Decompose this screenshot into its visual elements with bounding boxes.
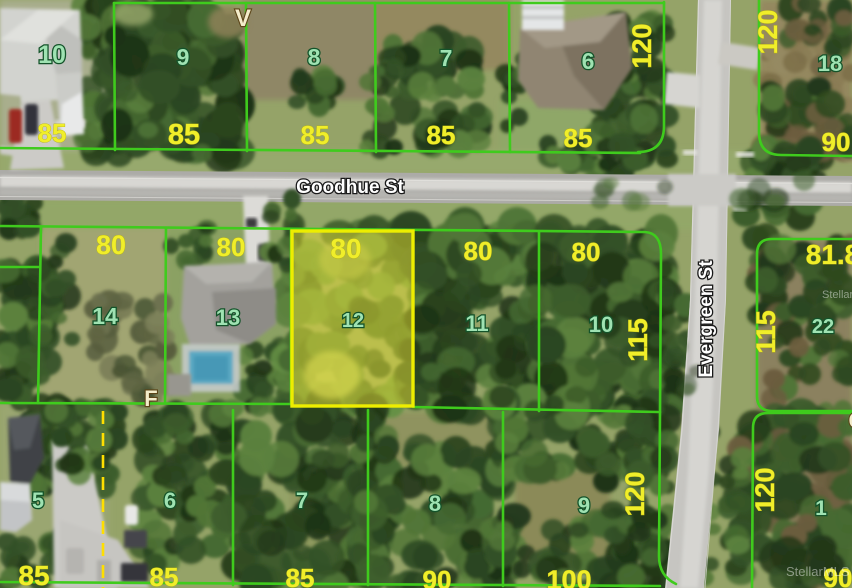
svg-text:V: V (235, 5, 251, 32)
svg-text:80: 80 (330, 233, 361, 264)
svg-text:115: 115 (623, 318, 653, 362)
svg-text:100: 100 (546, 565, 591, 588)
svg-text:Evergreen St: Evergreen St (696, 260, 717, 378)
svg-text:120: 120 (620, 471, 650, 516)
svg-text:9: 9 (578, 493, 590, 518)
svg-text:6: 6 (164, 488, 176, 513)
svg-text:12: 12 (342, 310, 364, 332)
svg-text:F: F (144, 386, 157, 411)
svg-text:Goodhue St: Goodhue St (296, 177, 404, 198)
svg-text:80: 80 (572, 237, 601, 267)
svg-text:85: 85 (38, 118, 67, 148)
svg-text:85: 85 (301, 120, 330, 150)
svg-text:80: 80 (464, 236, 493, 266)
svg-text:85: 85 (564, 123, 593, 153)
svg-text:80: 80 (217, 232, 246, 262)
svg-text:120: 120 (627, 23, 657, 68)
svg-text:90: 90 (423, 565, 452, 588)
svg-text:8: 8 (308, 44, 321, 70)
svg-text:7: 7 (296, 488, 308, 513)
svg-text:13: 13 (216, 305, 240, 330)
svg-text:85: 85 (286, 563, 315, 588)
svg-text:85: 85 (427, 120, 456, 150)
svg-text:120: 120 (753, 9, 783, 54)
svg-text:10: 10 (38, 41, 66, 69)
svg-text:85: 85 (18, 560, 49, 588)
svg-text:14: 14 (92, 303, 118, 329)
svg-text:115: 115 (751, 310, 781, 354)
svg-text:8: 8 (429, 491, 441, 516)
svg-text:6: 6 (582, 48, 595, 74)
svg-text:120: 120 (750, 467, 780, 512)
svg-text:StellarMLS: StellarMLS (786, 564, 850, 579)
svg-text:90: 90 (822, 127, 851, 157)
svg-text:85: 85 (150, 562, 179, 588)
svg-text:9: 9 (177, 44, 190, 70)
svg-text:Stellar MLS: Stellar MLS (822, 289, 852, 301)
svg-text:85: 85 (168, 119, 200, 151)
svg-text:18: 18 (818, 51, 842, 76)
svg-text:7: 7 (440, 45, 453, 71)
svg-text:G: G (848, 408, 852, 433)
svg-text:5: 5 (32, 488, 44, 513)
svg-text:10: 10 (589, 312, 613, 337)
svg-text:1: 1 (815, 497, 827, 520)
svg-text:81.8: 81.8 (806, 239, 852, 270)
svg-text:80: 80 (96, 230, 126, 260)
svg-text:22: 22 (812, 316, 834, 338)
svg-text:11: 11 (465, 311, 488, 336)
